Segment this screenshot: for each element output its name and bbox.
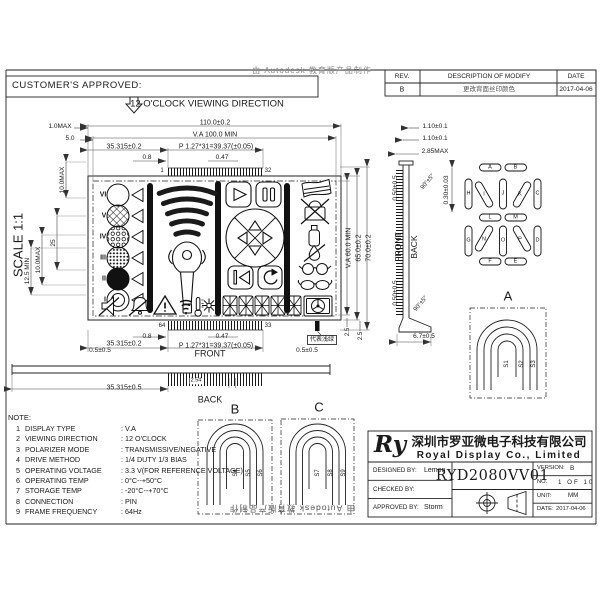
seg-s9: S9 bbox=[341, 469, 347, 476]
note-number: 8 bbox=[8, 497, 20, 506]
segment-digits bbox=[223, 296, 301, 315]
note-row: 5 OPERATING VOLTAGE : 3.3 V(FOR REFERENC… bbox=[8, 466, 338, 476]
note-row: 6 OPERATING TEMP : 0°C--+50°C bbox=[8, 476, 338, 486]
company-name-cn: 深圳市罗亚微电子科技有限公司 bbox=[411, 436, 586, 449]
dim-110p-b: 1.10±0.1 bbox=[422, 136, 447, 143]
note-value: : 3.3 V(FOR REFERENCE VOLTAGE) bbox=[121, 466, 338, 475]
goggles-icon bbox=[298, 280, 331, 290]
seg-c: C bbox=[536, 191, 540, 197]
seg-g: G bbox=[466, 238, 470, 244]
dim-35315-side: 35.315±0.5 bbox=[107, 385, 142, 392]
desc-header: DESCRIPTION OF MODIFY bbox=[448, 73, 530, 80]
seg-a: A bbox=[488, 165, 492, 171]
seg-n: N bbox=[482, 237, 486, 243]
seg-m: M bbox=[513, 215, 518, 221]
note-number: 5 bbox=[8, 466, 20, 475]
pin-64: 64 bbox=[159, 323, 166, 329]
notes-title: NOTE: bbox=[8, 413, 338, 422]
dim-110p-a: 1.10±0.1 bbox=[422, 124, 447, 131]
dim-50: 5.0 bbox=[65, 136, 74, 143]
note-value: : 1/4 DUTY 1/3 BIAS bbox=[121, 455, 338, 464]
dim-35315-bot: 35.315±0.2 bbox=[107, 341, 142, 348]
checked-by-label: CHECKED BY: bbox=[373, 487, 415, 493]
pin-1: 1 bbox=[160, 168, 163, 174]
dim-05-left: 0.5±0.5 bbox=[89, 348, 111, 355]
projection-symbol-icon bbox=[476, 492, 526, 515]
note-number: 7 bbox=[8, 486, 20, 495]
date-header: DATE bbox=[568, 73, 585, 80]
level-circles bbox=[107, 184, 129, 311]
note-name: OPERATING VOLTAGE bbox=[25, 466, 121, 475]
watermark-bottom: 由 Autodesk 教育版产品制作 bbox=[229, 504, 355, 513]
seg-e: E bbox=[514, 259, 518, 265]
rev-header: REV. bbox=[395, 73, 410, 80]
seg-p: P bbox=[518, 237, 522, 243]
dim-100max-a: 10.0MAX bbox=[60, 167, 67, 194]
drawing-sheet: CUSTOMER'S APPROVED: 由 Autodesk 教育版产品制作 … bbox=[0, 0, 600, 600]
no-drip-icon bbox=[304, 245, 325, 262]
marker-pin bbox=[315, 321, 321, 335]
sun-burst-icon bbox=[202, 299, 216, 313]
note-row: 7 STORAGE TEMP : -20°C--+70°C bbox=[8, 486, 338, 496]
note-name: DRIVE METHOD bbox=[25, 455, 121, 464]
fan-box-icon bbox=[304, 296, 332, 316]
note-name: VIEWING DIRECTION bbox=[25, 434, 121, 443]
roman-6: VI bbox=[100, 192, 107, 199]
company-name-en: Royal Display Co., Limited bbox=[417, 451, 582, 461]
date-label: DATE: bbox=[537, 507, 554, 513]
side-view-pin-comb bbox=[168, 373, 263, 386]
pin-33: 33 bbox=[265, 323, 272, 329]
note-name: DISPLAY TYPE bbox=[25, 424, 121, 433]
note-value: : 0°C--+50°C bbox=[121, 476, 338, 485]
watermark-top: 由 Autodesk 教育版产品制作 bbox=[252, 67, 372, 75]
customer-approved-label: CUSTOMER'S APPROVED: bbox=[12, 81, 142, 91]
note-row: 2 VIEWING DIRECTION : 12 O'CLOCK bbox=[8, 434, 338, 444]
note-row: 3 POLARIZER MODE : TRANSMISSIVE/NEGATIVE bbox=[8, 445, 338, 455]
thermometer-icon bbox=[195, 298, 204, 317]
roman-2: II bbox=[102, 276, 106, 283]
note-number: 4 bbox=[8, 455, 20, 464]
dim-05-right: 0.5±0.5 bbox=[296, 348, 318, 355]
notes-block: NOTE: 1 DISPLAY TYPE : V.A 2 VIEWING DIR… bbox=[8, 413, 338, 518]
roman-5: V bbox=[102, 213, 107, 220]
pause-button-icon bbox=[256, 182, 281, 207]
seg-i: I bbox=[483, 192, 485, 198]
dim-70: 70.0±0.2 bbox=[366, 234, 373, 261]
note-number: 6 bbox=[8, 476, 20, 485]
bottom-pin-comb bbox=[168, 321, 263, 330]
dim-047-top: 0.47 bbox=[216, 155, 229, 162]
dim-08-bot: 0.8 bbox=[142, 334, 151, 341]
note-name: CONNECTION bbox=[25, 497, 121, 506]
pin-32: 32 bbox=[265, 168, 272, 174]
lock-mute-icon bbox=[301, 199, 329, 224]
dim-va100: V.A 100.0 MIN bbox=[193, 132, 238, 139]
note-number: 2 bbox=[8, 434, 20, 443]
dim-35315-top: 35.315±0.2 bbox=[107, 144, 142, 151]
shower-spray-icon bbox=[159, 188, 215, 234]
part-number: RYD2080VV01 bbox=[436, 469, 549, 484]
glasses-icon bbox=[299, 264, 331, 275]
dim-285max: 2.85MAX bbox=[422, 149, 449, 156]
dim-110: 110.0±0.2 bbox=[200, 120, 231, 127]
flag-icon bbox=[302, 180, 331, 198]
note-name: OPERATING TEMP bbox=[25, 476, 121, 485]
approved-by-label: APPROVED BY: bbox=[373, 505, 419, 511]
mark-2: 2 bbox=[216, 306, 219, 312]
right-icon-column bbox=[298, 180, 332, 317]
marker-note: 代表浅绿 bbox=[307, 335, 337, 345]
rev-description: 更改背面丝印颜色 bbox=[463, 86, 515, 93]
dim-va60: V.A 60.0 MIN bbox=[346, 228, 353, 269]
front-side: FRONT bbox=[394, 232, 403, 261]
dim-25c: 2.5 bbox=[345, 328, 351, 336]
rev-date: 2017-04-06 bbox=[559, 86, 592, 93]
dim-050-top: 0.50±0.5 bbox=[393, 175, 400, 200]
repeat-button-icon bbox=[258, 266, 282, 289]
dim-08-top: 0.8 bbox=[142, 155, 151, 162]
version-label: VERSION: bbox=[537, 466, 565, 472]
sheet-no-value: 1 OF 10 bbox=[558, 480, 594, 486]
seg-s2: S2 bbox=[519, 360, 525, 367]
dim-67: 6.7±0.5 bbox=[413, 334, 435, 341]
detail-a-title: A bbox=[504, 290, 513, 303]
top-pin-comb bbox=[168, 168, 263, 176]
dim-25d: 2.5 bbox=[358, 332, 364, 340]
mark-1: 1 bbox=[216, 296, 219, 302]
version-value: B bbox=[570, 466, 574, 473]
note-name: STORAGE TEMP bbox=[25, 486, 121, 495]
roman-1: I bbox=[104, 297, 106, 304]
seg-k: K bbox=[518, 192, 522, 198]
dim-050-bot: 0.50±0.5 bbox=[393, 280, 400, 305]
dim-10max: 1.0MAX bbox=[48, 124, 71, 131]
seg-d: D bbox=[536, 238, 540, 244]
dim-047-bot: 0.47 bbox=[216, 334, 229, 341]
note-value: : V.A bbox=[121, 424, 338, 433]
unit-label: UNIT: bbox=[537, 494, 552, 500]
front-label: FRONT bbox=[195, 350, 226, 359]
seg-j: J bbox=[502, 191, 505, 197]
segment-reference-diagram bbox=[465, 164, 541, 265]
warning-triangle-icon bbox=[154, 296, 176, 314]
dim-25: 25 bbox=[51, 239, 58, 246]
note-number: 1 bbox=[8, 424, 20, 433]
date-value: 2017-04-06 bbox=[556, 507, 586, 513]
bottle-icon bbox=[309, 226, 320, 247]
note-name: POLARIZER MODE bbox=[25, 445, 121, 454]
approved-by-value: Storm bbox=[424, 504, 443, 511]
back-side: BACK bbox=[410, 235, 419, 258]
note-number: 9 bbox=[8, 507, 20, 516]
note-value: : 12 O'CLOCK bbox=[121, 434, 338, 443]
note-row: 1 DISPLAY TYPE : V.A bbox=[8, 424, 338, 434]
seg-f: F bbox=[488, 259, 491, 265]
note-value: : TRANSMISSIVE/NEGATIVE bbox=[121, 445, 338, 454]
seg-s3: S3 bbox=[531, 360, 537, 367]
note-row: 4 DRIVE METHOD : 1/4 DUTY 1/3 BIAS bbox=[8, 455, 338, 465]
note-name: FRAME FREQUENCY bbox=[25, 507, 121, 516]
roman-3: III bbox=[100, 255, 106, 262]
detail-view-a bbox=[470, 308, 546, 398]
seg-b: B bbox=[514, 165, 518, 171]
dim-254: 2.54 bbox=[190, 378, 203, 384]
level-triangle-icons bbox=[132, 189, 143, 307]
seg-s1: S1 bbox=[504, 360, 510, 367]
dim-65: 65.0±0.2 bbox=[356, 234, 363, 261]
viewing-direction: 12 O'CLOCK VIEWING DIRECTION bbox=[130, 99, 284, 109]
company-logo: Ry bbox=[374, 433, 406, 456]
designed-by-label: DESIGNED BY: bbox=[373, 468, 417, 474]
sheet-no-label: NO. bbox=[537, 480, 547, 486]
seg-h: H bbox=[467, 191, 471, 197]
scale-text: SCALE 1:1 bbox=[12, 213, 25, 277]
dim-100max-b: 10.0MAX bbox=[36, 247, 43, 274]
rev-value: B bbox=[400, 86, 405, 93]
dim-p127-top: P 1.27*31=39.37(±0.05) bbox=[179, 144, 253, 151]
detail-c-title: C bbox=[314, 401, 323, 414]
roman-4: IV bbox=[100, 234, 107, 241]
seg-o: O bbox=[501, 238, 505, 244]
note-value: : -20°C--+70°C bbox=[121, 486, 338, 495]
media-controls bbox=[226, 182, 284, 289]
dim-030: 0.30±0.03 bbox=[444, 176, 451, 205]
back-label: BACK bbox=[198, 396, 223, 405]
dim-125min: 12.5 MIN bbox=[25, 258, 32, 284]
seg-l: L bbox=[488, 215, 491, 221]
unit-value: MM bbox=[568, 493, 578, 499]
note-number: 3 bbox=[8, 445, 20, 454]
